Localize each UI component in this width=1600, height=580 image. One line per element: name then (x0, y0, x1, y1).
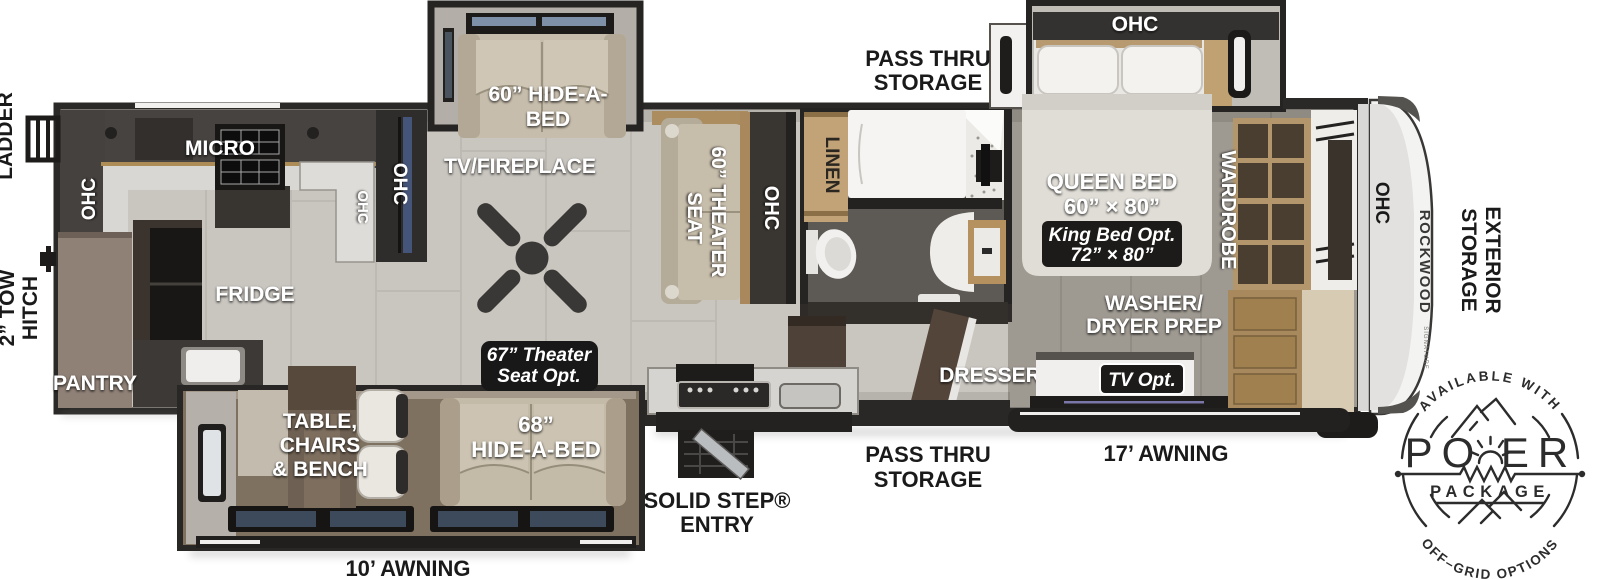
svg-text:PASS THRU: PASS THRU (865, 46, 991, 71)
svg-text:WASHER/: WASHER/ (1105, 292, 1203, 315)
svg-text:ROCKWOOD: ROCKWOOD (1416, 210, 1433, 315)
svg-text:OHC: OHC (389, 163, 410, 206)
svg-text:BED: BED (526, 108, 570, 131)
svg-text:60” HIDE-A-: 60” HIDE-A- (488, 83, 607, 106)
svg-text:68”: 68” (518, 412, 553, 437)
svg-text:DRESSER: DRESSER (939, 364, 1041, 387)
svg-text:OHC: OHC (354, 190, 371, 224)
svg-text:TV Opt.: TV Opt. (1108, 370, 1176, 391)
svg-text:MICRO: MICRO (185, 137, 255, 160)
svg-text:& BENCH: & BENCH (272, 458, 368, 481)
svg-text:STORAGE: STORAGE (874, 467, 982, 492)
svg-text:LADDER: LADDER (0, 92, 17, 180)
svg-text:TV/FIREPLACE: TV/FIREPLACE (444, 155, 596, 178)
svg-text:EXTERIOR: EXTERIOR (1481, 206, 1504, 313)
svg-text:SIGNATURE: SIGNATURE (1422, 326, 1428, 370)
svg-text:HITCH: HITCH (19, 276, 42, 340)
svg-text:OHC: OHC (760, 186, 782, 230)
svg-text:PACKAGE: PACKAGE (1430, 483, 1550, 501)
svg-text:TABLE,: TABLE, (283, 410, 357, 433)
svg-text:17’ AWNING: 17’ AWNING (1103, 441, 1228, 466)
svg-text:SOLID STEP®: SOLID STEP® (643, 488, 790, 513)
svg-text:QUEEN BED: QUEEN BED (1047, 169, 1178, 194)
svg-text:60” × 80”: 60” × 80” (1064, 194, 1160, 219)
svg-text:Seat Opt.: Seat Opt. (497, 366, 580, 387)
svg-text:10’ AWNING: 10’ AWNING (345, 556, 470, 580)
svg-text:STORAGE: STORAGE (1457, 208, 1480, 311)
svg-text:PASS THRU: PASS THRU (865, 442, 991, 467)
svg-text:WARDROBE: WARDROBE (1217, 151, 1239, 270)
svg-text:King Bed Opt.: King Bed Opt. (1049, 225, 1176, 246)
svg-text:72” × 80”: 72” × 80” (1071, 245, 1154, 266)
svg-text:OHC: OHC (1371, 182, 1392, 225)
svg-text:LINEN: LINEN (821, 137, 842, 194)
svg-text:STORAGE: STORAGE (874, 70, 982, 95)
svg-text:2” TOW: 2” TOW (0, 270, 19, 347)
svg-text:DRYER PREP: DRYER PREP (1086, 315, 1222, 338)
svg-text:67” Theater: 67” Theater (487, 345, 593, 366)
svg-text:ER: ER (1501, 429, 1577, 476)
svg-text:HIDE-A-BED: HIDE-A-BED (471, 437, 601, 462)
svg-text:PANTRY: PANTRY (53, 372, 137, 395)
svg-text:OHC: OHC (79, 178, 100, 221)
svg-text:ENTRY: ENTRY (680, 512, 754, 537)
svg-text:60” THEATER: 60” THEATER (707, 147, 729, 278)
svg-text:FRIDGE: FRIDGE (215, 283, 294, 306)
svg-text:SEAT: SEAT (683, 192, 705, 244)
svg-text:CHAIRS: CHAIRS (280, 434, 361, 457)
svg-text:OHC: OHC (1112, 13, 1159, 36)
